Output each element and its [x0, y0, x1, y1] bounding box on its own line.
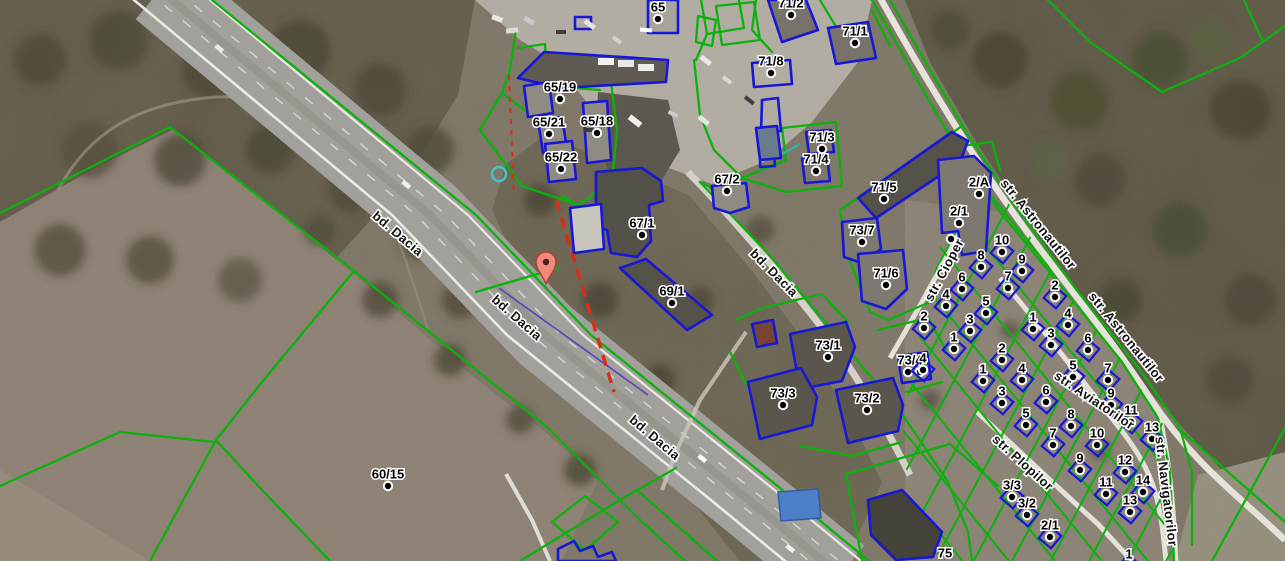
parcel-label-text: 3/3 — [1003, 478, 1021, 493]
parcel-label-text: 9 — [1018, 252, 1025, 267]
parcel-label-text: 71/4 — [803, 152, 829, 167]
parcel-point-core — [1105, 377, 1111, 383]
parcel-point-core — [1009, 494, 1015, 500]
parcel-label-text: 5 — [1069, 358, 1076, 373]
parcel-point-core — [558, 166, 564, 172]
parcel-label-text: 3 — [1047, 326, 1054, 341]
parcel-point-core — [1052, 294, 1058, 300]
parcel-point-core — [594, 130, 600, 136]
parcel-point-core — [1043, 399, 1049, 405]
parcel-label-text: 67/2 — [714, 172, 739, 187]
parcel-label-text: 6 — [1042, 383, 1049, 398]
parcel-label-text: 75 — [938, 546, 952, 561]
parcel-point-core — [951, 346, 957, 352]
parcel-label-text: 6 — [958, 270, 965, 285]
parcel-point-core — [788, 12, 794, 18]
parcel-label-text: 3 — [966, 312, 973, 327]
parcel-point-core — [859, 239, 865, 245]
parcel-point-core — [385, 483, 391, 489]
parcel-label-text: 10 — [995, 233, 1009, 248]
parcel-label-text: 7 — [1104, 361, 1111, 376]
parcel-point-core — [1019, 377, 1025, 383]
parcel-label-text: 11 — [1099, 475, 1113, 490]
parcel-label-text: 65/19 — [544, 80, 577, 95]
parcel-point-core — [1077, 467, 1083, 473]
parcel-point-core — [943, 303, 949, 309]
parcel-label-text: 65/22 — [545, 150, 578, 165]
parcel-label-text: 7 — [1004, 269, 1011, 284]
parcel-label-text: 14 — [1136, 473, 1151, 488]
parcel-point-core — [983, 310, 989, 316]
parcel-label-text: 3 — [998, 384, 1005, 399]
parcel-label-text: 65/18 — [581, 114, 614, 129]
parcel-point-core — [557, 96, 563, 102]
parcel-point-core — [956, 220, 962, 226]
parcel-label-text: 67/1 — [629, 216, 654, 231]
parcel-point-core — [1094, 442, 1100, 448]
parcel-label-text: 3/2 — [1018, 496, 1036, 511]
parcel-label-text: 71/2 — [778, 0, 803, 11]
parcel-label-text: 2 — [920, 309, 927, 324]
parcel-label-text: 12 — [1118, 453, 1132, 468]
parcel-point-core — [959, 286, 965, 292]
parcel-label-text: 1 — [950, 330, 957, 345]
parcel-label-text: 1 — [979, 362, 986, 377]
parcel-point-core — [768, 70, 774, 76]
parcel-point-core — [813, 168, 819, 174]
parcel-point-core — [1122, 469, 1128, 475]
parcel-point-core — [920, 367, 926, 373]
parcel-point-core — [999, 400, 1005, 406]
map-pin-dot — [543, 259, 549, 265]
parcel-label-text: 71/6 — [873, 266, 898, 281]
parcel-point-core — [883, 282, 889, 288]
parcel-point-core — [852, 40, 858, 46]
parcel-label-text: 9 — [1107, 386, 1114, 401]
parcel-point-core — [976, 191, 982, 197]
parcel-label-text: 4 — [942, 287, 950, 302]
parcel-label[interactable]: 75 — [938, 546, 952, 561]
parcel-point-core — [1024, 512, 1030, 518]
parcel-label-text: 69/1 — [659, 284, 684, 299]
parcel-label-text: 2/1 — [950, 204, 968, 219]
parcel-point-core — [1127, 509, 1133, 515]
parcel-point-core — [978, 264, 984, 270]
parcel-label-text: 4 — [1064, 306, 1072, 321]
parcel-point-core — [724, 188, 730, 194]
parcel-point-core — [825, 354, 831, 360]
parcel-point-core — [1085, 347, 1091, 353]
parcel-point-core — [1030, 326, 1036, 332]
parcel-label-text: 13 — [1123, 493, 1137, 508]
parcel-label-text: 2 — [998, 341, 1005, 356]
map-canvas[interactable]: 6571/271/871/165/1965/2165/1865/2271/371… — [0, 0, 1285, 561]
parcel-point-core — [864, 407, 870, 413]
parcel-label-text: 65 — [651, 0, 665, 15]
parcel-label-text: 7 — [1049, 426, 1056, 441]
parcel-point-core — [999, 357, 1005, 363]
parcel-point-core — [1140, 489, 1146, 495]
parcel-point-core — [999, 249, 1005, 255]
parcel-point-core — [1068, 423, 1074, 429]
parcel-label-text: 2 — [1051, 278, 1058, 293]
parcel-label-text: 73/2 — [854, 391, 879, 406]
parcel-label-text: 1 — [1029, 310, 1036, 325]
blue-roof-building — [778, 489, 821, 521]
parcel-label-text: 4 — [919, 351, 927, 366]
map-svg[interactable]: 6571/271/871/165/1965/2165/1865/2271/371… — [0, 0, 1285, 561]
parcel-point-core — [881, 196, 887, 202]
parcel-point-core — [1103, 491, 1109, 497]
parcel-point-core — [967, 328, 973, 334]
parcel-label-text: 71/5 — [871, 180, 896, 195]
parcel-label-text: 9 — [1076, 451, 1083, 466]
parcel-point-core — [1023, 422, 1029, 428]
parcel-point-core — [905, 369, 911, 375]
parcel-label-text: 2/A — [969, 175, 990, 190]
parcel-point-core — [780, 402, 786, 408]
parcel-point-core — [546, 131, 552, 137]
parcel-label-text: 10 — [1090, 426, 1104, 441]
parcel-label-text: 5 — [982, 294, 989, 309]
parcel-point-core — [655, 16, 661, 22]
parcel-point-core — [1050, 442, 1056, 448]
parcel-point-core — [1005, 285, 1011, 291]
parcel-point-core — [669, 300, 675, 306]
parcel-point-core — [1019, 268, 1025, 274]
parcel-point-core — [1048, 342, 1054, 348]
parcel-label-text: 4 — [1018, 361, 1026, 376]
parcel-label-text: 6 — [1084, 331, 1091, 346]
parcel-point-core — [1047, 534, 1053, 540]
parcel-label-text: 73/7 — [849, 223, 874, 238]
parcel-point-core — [980, 378, 986, 384]
parcel-label-text: 71/8 — [758, 54, 783, 69]
parcel-label-text: 71/3 — [809, 130, 834, 145]
parcel-label-text: 1 — [1125, 547, 1132, 561]
parcel-label-text: 2/1 — [1041, 518, 1059, 533]
parcel-label-text: 65/21 — [533, 115, 566, 130]
parcel-point-core — [1065, 322, 1071, 328]
parcel-label-text: 60/15 — [372, 467, 405, 482]
parcel-label-text: 73/1 — [815, 338, 840, 353]
parcel-point-core — [639, 232, 645, 238]
parcel-label-text: 13 — [1145, 420, 1159, 435]
parcel-label-text: 8 — [977, 248, 984, 263]
parcel-label-text: 8 — [1067, 407, 1074, 422]
parcel-label-text: 73/3 — [770, 386, 795, 401]
parcel-point-core — [921, 325, 927, 331]
parcel-label-text: 5 — [1022, 406, 1029, 421]
parcel-label-text: 71/1 — [842, 24, 867, 39]
